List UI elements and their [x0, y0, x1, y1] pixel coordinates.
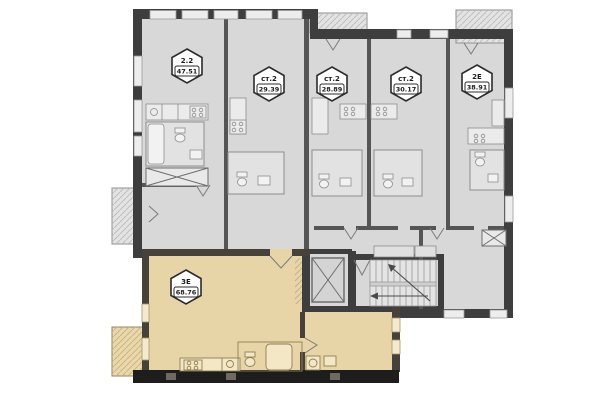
- unit-badge-st2-a[interactable]: ст.2 29.39: [254, 67, 284, 101]
- unit-area-label: 68.76: [176, 289, 197, 297]
- floor-plan-svg: 2.2 47.51 ст.2 29.39 ст.2 28.89 ст.2 30.…: [0, 0, 600, 400]
- unit-area-label: 38.91: [467, 84, 488, 92]
- unit-region-st2-a[interactable]: [228, 19, 304, 249]
- unit-badge-3e[interactable]: 3Е 68.76: [171, 270, 201, 304]
- unit-type-label: ст.2: [398, 75, 414, 83]
- unit-type-label: 2Е: [472, 73, 482, 81]
- elevator-shaft: [312, 258, 344, 302]
- unit-region-st2-c[interactable]: [371, 39, 446, 226]
- unit-type-label: 2.2: [181, 57, 194, 65]
- unit-area-label: 30.17: [396, 86, 417, 94]
- unit-badge-st2-c[interactable]: ст.2 30.17: [391, 67, 421, 101]
- staircase: [370, 246, 436, 306]
- unit-badge-st2-b[interactable]: ст.2 28.89: [317, 67, 347, 101]
- unit-region-st2-b[interactable]: [309, 39, 367, 226]
- unit-area-label: 28.89: [322, 86, 343, 94]
- floor-plan-page: 2.2 47.51 ст.2 29.39 ст.2 28.89 ст.2 30.…: [0, 0, 600, 400]
- unit-area-label: 29.39: [259, 86, 280, 94]
- unit-area-label: 47.51: [177, 68, 198, 76]
- unit-type-label: ст.2: [261, 75, 277, 83]
- unit-badge-2-2[interactable]: 2.2 47.51: [172, 49, 202, 83]
- unit-badge-2e[interactable]: 2Е 38.91: [462, 65, 492, 99]
- unit-type-label: ст.2: [324, 75, 340, 83]
- unit-type-label: 3Е: [181, 278, 191, 286]
